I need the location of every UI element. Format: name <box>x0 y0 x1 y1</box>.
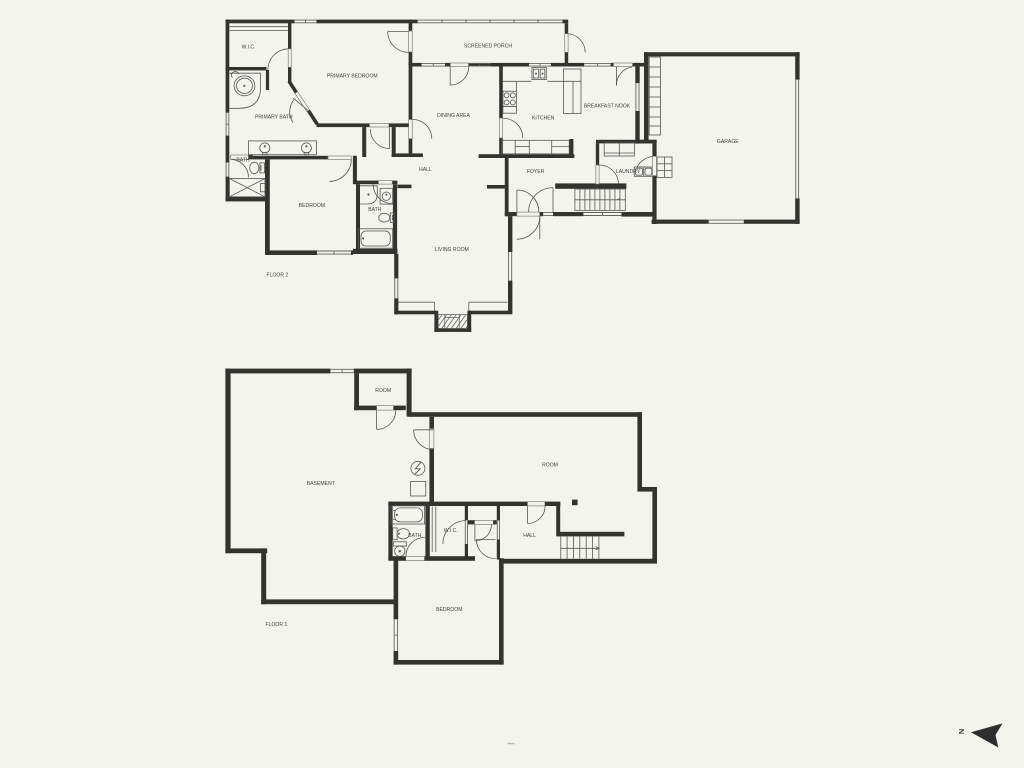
svg-text:BATH: BATH <box>236 158 250 164</box>
svg-text:GARAGE: GARAGE <box>717 139 739 145</box>
svg-text:FOYER: FOYER <box>527 169 545 175</box>
svg-text:PRIMARY BEDROOM: PRIMARY BEDROOM <box>327 73 378 79</box>
svg-text:DINING AREA: DINING AREA <box>437 113 470 119</box>
svg-text:BATH: BATH <box>368 207 382 213</box>
svg-text:LAUNDRY: LAUNDRY <box>616 169 641 175</box>
svg-text:BREAKFAST NOOK: BREAKFAST NOOK <box>584 104 631 110</box>
svg-text:LIVING ROOM: LIVING ROOM <box>435 247 469 253</box>
svg-text:BASEMENT: BASEMENT <box>307 481 335 487</box>
svg-text:W.I.C.: W.I.C. <box>242 45 256 51</box>
svg-text:KITCHEN: KITCHEN <box>532 116 555 122</box>
svg-text:W.I.C.: W.I.C. <box>444 528 458 534</box>
svg-text:ROOM: ROOM <box>542 463 558 469</box>
svg-text:HALL: HALL <box>419 167 432 173</box>
svg-text:BEDROOM: BEDROOM <box>299 203 325 209</box>
svg-text:PRIMARY BATH: PRIMARY BATH <box>255 114 293 120</box>
svg-text:ROOM: ROOM <box>375 388 391 394</box>
svg-text:SCREENED PORCH: SCREENED PORCH <box>464 44 512 50</box>
svg-text:FLOOR 1: FLOOR 1 <box>266 622 288 628</box>
svg-text:BATH: BATH <box>408 533 422 539</box>
svg-text:HALL: HALL <box>523 533 536 539</box>
svg-text:N: N <box>957 729 966 734</box>
svg-text:FLOOR 2: FLOOR 2 <box>267 272 289 278</box>
svg-text:BEDROOM: BEDROOM <box>436 607 462 613</box>
